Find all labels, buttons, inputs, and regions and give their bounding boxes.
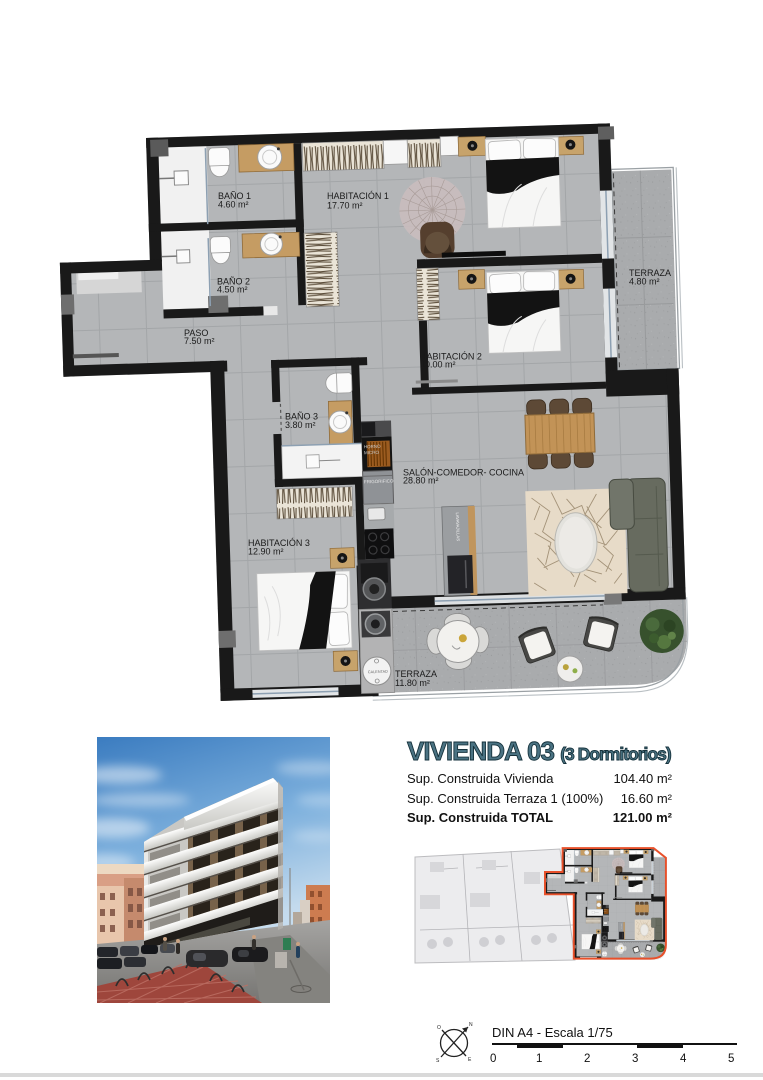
svg-text:4.50 m²: 4.50 m² (217, 285, 248, 295)
svg-text:4: 4 (680, 1053, 687, 1065)
svg-text:Sup. Construida Terraza 1 (100: Sup. Construida Terraza 1 (100%) (407, 791, 603, 806)
svg-text:Sup. Construida TOTAL: Sup. Construida TOTAL (407, 810, 553, 825)
svg-text:16.60 m²: 16.60 m² (621, 791, 673, 806)
svg-text:2: 2 (584, 1053, 590, 1065)
svg-text:11.80 m²: 11.80 m² (395, 678, 430, 688)
svg-text:3.80 m²: 3.80 m² (285, 420, 316, 430)
svg-text:HABITACIÓN 1: HABITACIÓN 1 (327, 191, 389, 201)
svg-text:28.80 m²: 28.80 m² (403, 476, 439, 486)
svg-text:121.00 m²: 121.00 m² (613, 810, 673, 825)
svg-text:4.80 m²: 4.80 m² (629, 277, 660, 287)
svg-text:4.60 m²: 4.60 m² (218, 200, 249, 210)
svg-text:0: 0 (490, 1053, 496, 1065)
svg-text:5: 5 (728, 1053, 734, 1065)
svg-text:DIN A4 - Escala 1/75: DIN A4 - Escala 1/75 (492, 1025, 613, 1040)
svg-text:O: O (437, 1025, 441, 1031)
svg-text:3: 3 (632, 1053, 638, 1065)
svg-text:17.70 m²: 17.70 m² (327, 201, 363, 211)
svg-text:N: N (469, 1022, 473, 1028)
svg-text:12.90 m²: 12.90 m² (248, 547, 284, 557)
svg-text:104.40 m²: 104.40 m² (613, 771, 672, 786)
svg-text:10.00 m²: 10.00 m² (420, 360, 456, 370)
svg-text:7.50 m²: 7.50 m² (184, 336, 215, 346)
svg-text:1: 1 (536, 1053, 542, 1065)
svg-text:Sup. Construida Vivienda: Sup. Construida Vivienda (407, 771, 554, 786)
